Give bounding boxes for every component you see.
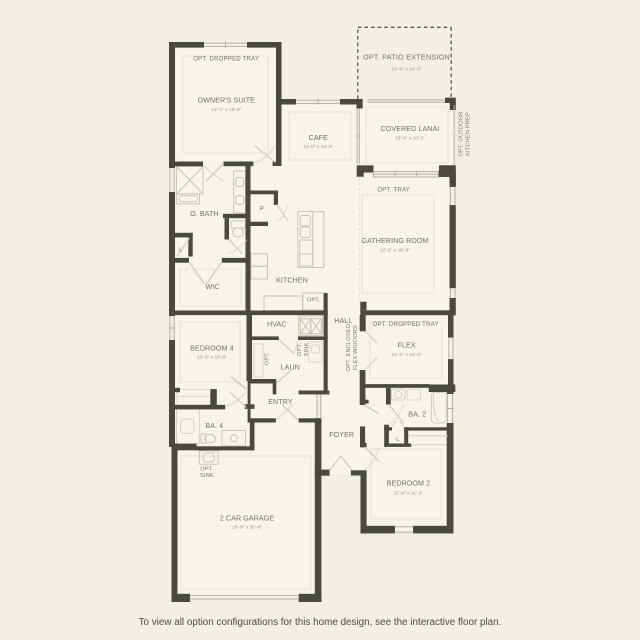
svg-text:12'-2" x 10'-0": 12'-2" x 10'-0" (392, 352, 422, 358)
svg-text:19'-8" x 20'-6": 19'-8" x 20'-6" (232, 525, 262, 531)
svg-text:BA. 4: BA. 4 (205, 422, 223, 430)
svg-text:OPT. DROPPED TRAY: OPT. DROPPED TRAY (193, 56, 259, 62)
svg-text:To view all option configurati: To view all option configurations for th… (139, 617, 502, 628)
svg-text:COVERED LANAI: COVERED LANAI (381, 125, 440, 133)
svg-text:O. BATH: O. BATH (190, 210, 219, 218)
svg-text:OPT. PATIO EXTENSION: OPT. PATIO EXTENSION (363, 53, 450, 62)
svg-text:WIC: WIC (205, 283, 219, 291)
svg-text:CAFE: CAFE (309, 134, 328, 142)
svg-text:FLEX W/DOORS: FLEX W/DOORS (353, 325, 359, 370)
svg-text:FOYER: FOYER (329, 431, 354, 439)
svg-text:L: L (396, 437, 399, 443)
svg-text:P: P (260, 206, 264, 212)
svg-text:BEDROOM 4: BEDROOM 4 (190, 344, 233, 352)
svg-text:OPT.: OPT. (297, 343, 303, 357)
svg-text:BA. 2: BA. 2 (408, 411, 426, 419)
svg-text:ENTRY: ENTRY (268, 398, 293, 406)
svg-text:OPT. ENCLOSED: OPT. ENCLOSED (346, 324, 352, 371)
svg-text:OPT.: OPT. (265, 352, 271, 366)
svg-text:LAUN: LAUN (281, 364, 300, 372)
svg-text:10'-0" x 10'-8": 10'-0" x 10'-8" (197, 355, 227, 361)
svg-text:SINK: SINK (200, 473, 214, 479)
svg-text:GATHERING ROOM: GATHERING ROOM (361, 237, 428, 245)
svg-text:SINK: SINK (304, 343, 310, 357)
svg-text:HALL: HALL (334, 317, 352, 325)
svg-text:OPT. DROPPED TRAY: OPT. DROPPED TRAY (373, 322, 439, 328)
svg-text:FLEX: FLEX (398, 342, 416, 350)
svg-text:2 CAR GARAGE: 2 CAR GARAGE (220, 515, 275, 523)
svg-text:KITCHEN: KITCHEN (276, 277, 308, 285)
svg-text:L: L (179, 247, 182, 253)
svg-text:OWNER'S SUITE: OWNER'S SUITE (198, 97, 256, 105)
svg-text:HVAC: HVAC (267, 321, 287, 329)
svg-text:OPT.: OPT. (307, 298, 321, 304)
svg-text:OPT.: OPT. (200, 467, 214, 473)
svg-text:11'-9" x 11'-2": 11'-9" x 11'-2" (394, 491, 424, 497)
svg-text:BEDROOM 2: BEDROOM 2 (387, 480, 430, 488)
svg-text:12'-6" x 18'-9": 12'-6" x 18'-9" (380, 248, 410, 254)
svg-text:OPT. TRAY: OPT. TRAY (377, 188, 410, 194)
svg-text:13'-8" x 10'-0": 13'-8" x 10'-0" (391, 67, 421, 73)
svg-text:KITCHEN PREP: KITCHEN PREP (466, 112, 472, 156)
svg-text:14'-1" x 16'-0": 14'-1" x 16'-0" (211, 107, 241, 113)
svg-text:11'-0" x 13'-4": 11'-0" x 13'-4" (303, 144, 333, 150)
svg-text:13'-0" x 10'-0": 13'-0" x 10'-0" (395, 136, 425, 142)
